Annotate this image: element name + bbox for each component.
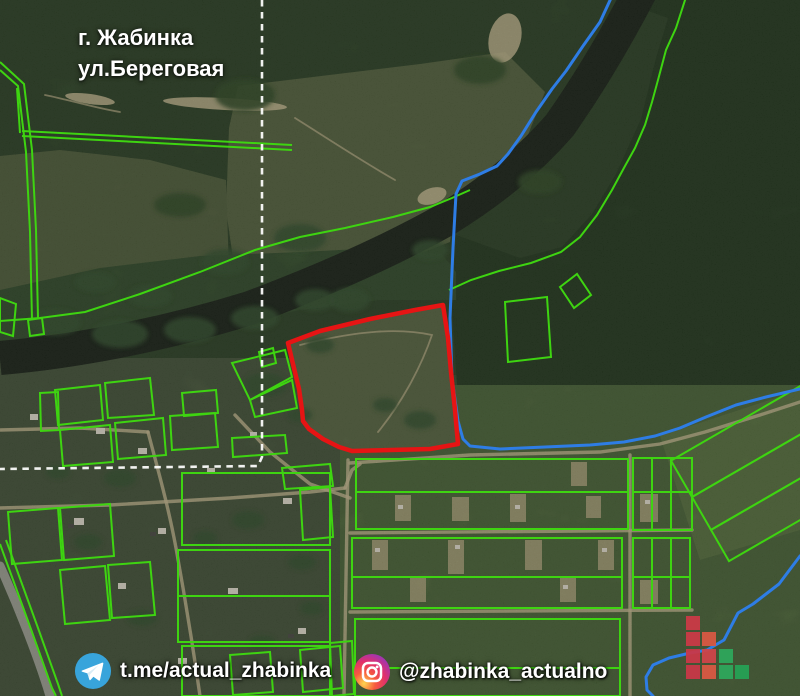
instagram-icon[interactable]: [353, 653, 391, 691]
grain-light-overlay: [0, 0, 800, 696]
location-label: г. Жабинка ул.Береговая: [78, 22, 224, 84]
instagram-link[interactable]: @zhabinka_actualno: [353, 653, 607, 691]
telegram-icon[interactable]: [74, 652, 112, 690]
instagram-handle[interactable]: @zhabinka_actualno: [399, 660, 607, 684]
telegram-link[interactable]: t.me/actual_zhabinka: [74, 652, 331, 690]
satellite-map: [0, 0, 800, 696]
location-city: г. Жабинка: [78, 22, 224, 53]
location-street: ул.Береговая: [78, 53, 224, 84]
map-screenshot: г. Жабинка ул.Береговая t.me/actual_zhab…: [0, 0, 800, 696]
telegram-handle[interactable]: t.me/actual_zhabinka: [120, 659, 331, 683]
